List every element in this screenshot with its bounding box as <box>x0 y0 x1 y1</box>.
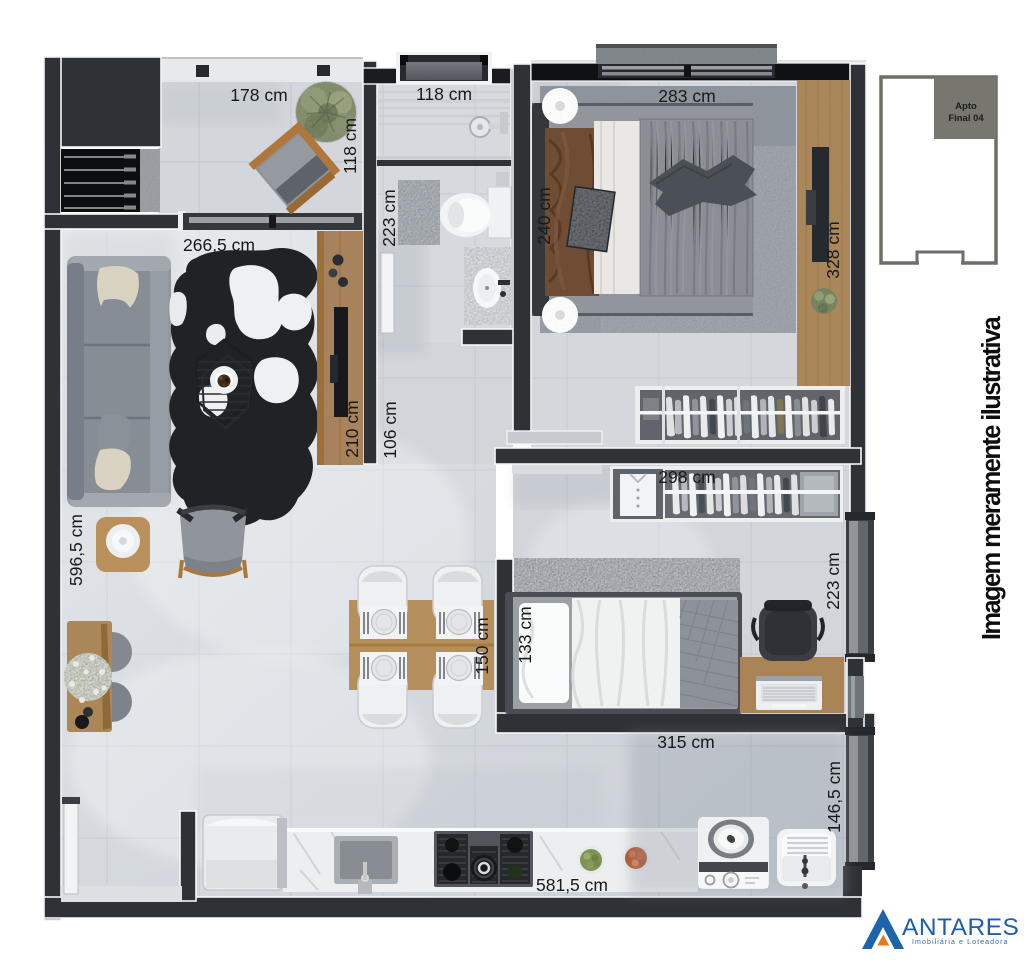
svg-text:581,5 cm: 581,5 cm <box>536 875 608 895</box>
svg-text:266,5 cm: 266,5 cm <box>183 235 255 255</box>
svg-text:ANTARES: ANTARES <box>902 914 1019 941</box>
svg-text:Imobiliária e Loteadora: Imobiliária e Loteadora <box>912 939 1009 946</box>
svg-text:Final 04: Final 04 <box>948 113 984 124</box>
svg-text:Imagem meramente ilustrativa: Imagem meramente ilustrativa <box>978 315 1006 640</box>
svg-text:328 cm: 328 cm <box>823 221 843 278</box>
svg-text:178 cm: 178 cm <box>230 85 287 105</box>
svg-text:596,5 cm: 596,5 cm <box>66 514 86 586</box>
svg-text:106 cm: 106 cm <box>380 401 400 458</box>
svg-text:210 cm: 210 cm <box>342 400 362 457</box>
svg-text:133 cm: 133 cm <box>515 606 535 663</box>
svg-text:Apto: Apto <box>955 101 977 112</box>
svg-text:223 cm: 223 cm <box>823 552 843 609</box>
svg-text:240 cm: 240 cm <box>534 187 554 244</box>
svg-text:298 cm: 298 cm <box>658 467 715 487</box>
svg-text:146,5 cm: 146,5 cm <box>824 761 844 833</box>
svg-text:118 cm: 118 cm <box>340 118 360 174</box>
svg-text:150 cm: 150 cm <box>472 617 492 674</box>
svg-text:315 cm: 315 cm <box>657 732 714 752</box>
svg-text:118 cm: 118 cm <box>416 84 472 104</box>
svg-text:283 cm: 283 cm <box>658 86 715 106</box>
svg-text:223 cm: 223 cm <box>379 189 399 246</box>
